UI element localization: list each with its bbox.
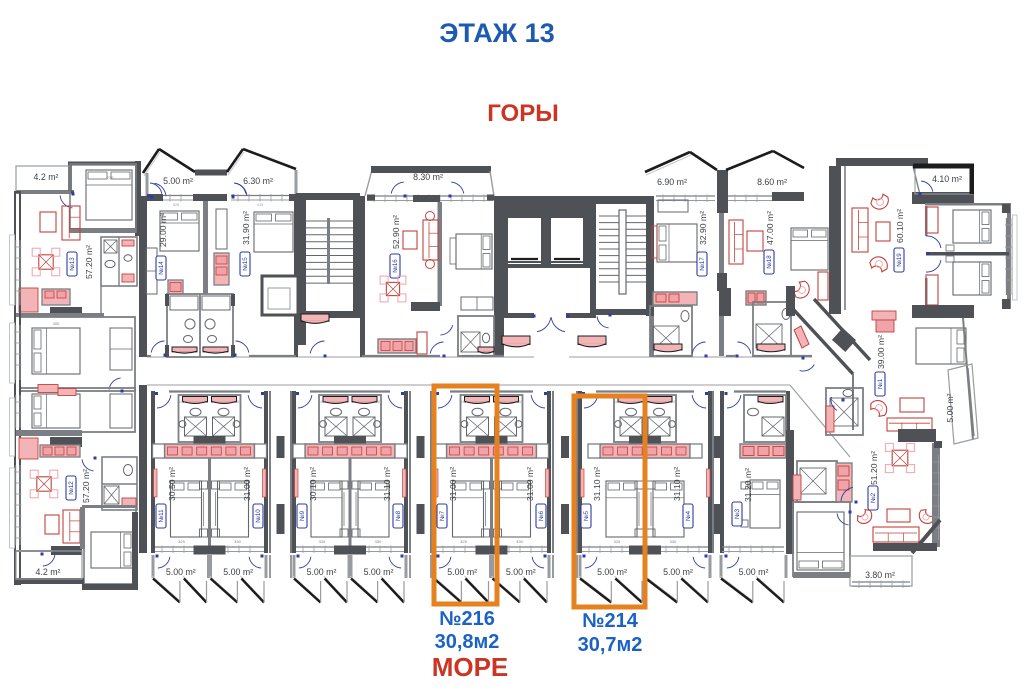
svg-text:30.50 m²: 30.50 m²	[167, 467, 177, 501]
svg-text:№18: №18	[766, 255, 773, 269]
svg-text:6.30 m²: 6.30 m²	[243, 176, 273, 186]
svg-text:5.00 m²: 5.00 m²	[307, 567, 337, 577]
svg-text:№4: №4	[685, 510, 692, 521]
svg-text:330: 330	[516, 539, 523, 544]
svg-text:31.10 m²: 31.10 m²	[672, 467, 682, 501]
svg-text:180: 180	[235, 400, 241, 404]
svg-text:330: 330	[375, 539, 382, 544]
svg-text:31.20 m²: 31.20 m²	[743, 468, 753, 502]
svg-text:4.10 m²: 4.10 m²	[932, 174, 962, 184]
svg-text:№8: №8	[395, 510, 402, 521]
svg-text:330: 330	[234, 539, 241, 544]
svg-text:31.10 m²: 31.10 m²	[382, 467, 392, 501]
svg-text:№3: №3	[734, 508, 741, 519]
svg-text:325: 325	[319, 539, 326, 544]
svg-text:5.00 m²: 5.00 m²	[166, 567, 196, 577]
svg-text:№1: №1	[877, 378, 884, 389]
svg-text:31.10 m²: 31.10 m²	[592, 467, 602, 501]
svg-text:№12: №12	[68, 481, 75, 495]
svg-text:39.00 m²: 39.00 m²	[876, 335, 886, 369]
svg-text:180: 180	[319, 400, 325, 404]
svg-text:32.90 m²: 32.90 m²	[698, 211, 708, 245]
svg-text:ЭТАЖ 13: ЭТАЖ 13	[439, 18, 554, 48]
svg-text:47.00 m²: 47.00 m²	[765, 211, 775, 245]
svg-text:270: 270	[107, 175, 114, 180]
svg-text:180: 180	[670, 400, 676, 404]
svg-text:5.00 m²: 5.00 m²	[223, 567, 253, 577]
svg-text:5.00 m²: 5.00 m²	[739, 567, 769, 577]
svg-text:57.20 m²: 57.20 m²	[81, 469, 91, 503]
svg-text:180: 180	[517, 400, 523, 404]
svg-text:№16: №16	[392, 259, 399, 273]
svg-text:180: 180	[179, 400, 185, 404]
svg-text:5.00 m²: 5.00 m²	[163, 176, 193, 186]
svg-text:5.00 m²: 5.00 m²	[364, 567, 394, 577]
svg-text:400: 400	[53, 321, 60, 326]
svg-text:30,7м2: 30,7м2	[578, 634, 643, 656]
svg-text:5.00 m²: 5.00 m²	[597, 567, 627, 577]
svg-text:5.00 m²: 5.00 m²	[945, 393, 955, 422]
svg-text:№7: №7	[439, 510, 446, 521]
svg-text:29.00 m²: 29.00 m²	[158, 213, 168, 247]
svg-text:№14: №14	[158, 261, 165, 275]
svg-text:325: 325	[614, 539, 621, 544]
svg-text:31.00 m²: 31.00 m²	[525, 467, 535, 501]
svg-text:180: 180	[614, 400, 620, 404]
svg-text:№15: №15	[242, 257, 249, 271]
svg-text:415: 415	[257, 203, 263, 207]
svg-text:31.00 m²: 31.00 m²	[242, 467, 252, 501]
svg-text:180: 180	[375, 400, 381, 404]
svg-text:60.10 m²: 60.10 m²	[895, 209, 905, 243]
svg-text:№6: №6	[538, 510, 545, 521]
svg-text:№19: №19	[896, 253, 903, 267]
svg-text:31.00 m²: 31.00 m²	[448, 467, 458, 501]
svg-text:52.90 m²: 52.90 m²	[391, 215, 401, 249]
svg-text:30.10 m²: 30.10 m²	[308, 467, 318, 501]
svg-text:3.80 m²: 3.80 m²	[865, 570, 895, 580]
svg-text:57.20 m²: 57.20 m²	[84, 245, 94, 279]
svg-text:8.30 m²: 8.30 m²	[413, 172, 443, 182]
svg-text:6.90 m²: 6.90 m²	[657, 177, 687, 187]
svg-text:№5: №5	[583, 510, 590, 521]
svg-text:5.00 m²: 5.00 m²	[506, 567, 536, 577]
svg-text:№13: №13	[69, 257, 76, 271]
svg-text:4.2 m²: 4.2 m²	[34, 172, 59, 182]
svg-text:4.2 m²: 4.2 m²	[36, 567, 61, 577]
svg-text:5.00 m²: 5.00 m²	[447, 567, 477, 577]
svg-text:8.60 m²: 8.60 m²	[757, 177, 787, 187]
svg-text:30,8м2: 30,8м2	[435, 631, 500, 653]
svg-text:№2: №2	[870, 492, 877, 503]
svg-text:ГОРЫ: ГОРЫ	[487, 100, 558, 127]
svg-text:180: 180	[461, 400, 467, 404]
svg-text:5.00 m²: 5.00 m²	[663, 567, 693, 577]
svg-text:51.20 m²: 51.20 m²	[869, 451, 879, 485]
svg-text:525: 525	[173, 203, 179, 207]
svg-text:№10: №10	[255, 509, 262, 523]
svg-text:325: 325	[460, 539, 467, 544]
svg-text:№214: №214	[582, 610, 639, 632]
svg-text:№216: №216	[439, 608, 495, 630]
svg-text:31.90 m²: 31.90 m²	[241, 211, 251, 245]
svg-text:№17: №17	[699, 257, 706, 271]
svg-text:МОРЕ: МОРЕ	[432, 652, 509, 682]
svg-text:№11: №11	[158, 509, 165, 523]
svg-text:330: 330	[670, 539, 677, 544]
svg-text:№9: №9	[299, 510, 306, 521]
svg-text:325: 325	[178, 539, 185, 544]
